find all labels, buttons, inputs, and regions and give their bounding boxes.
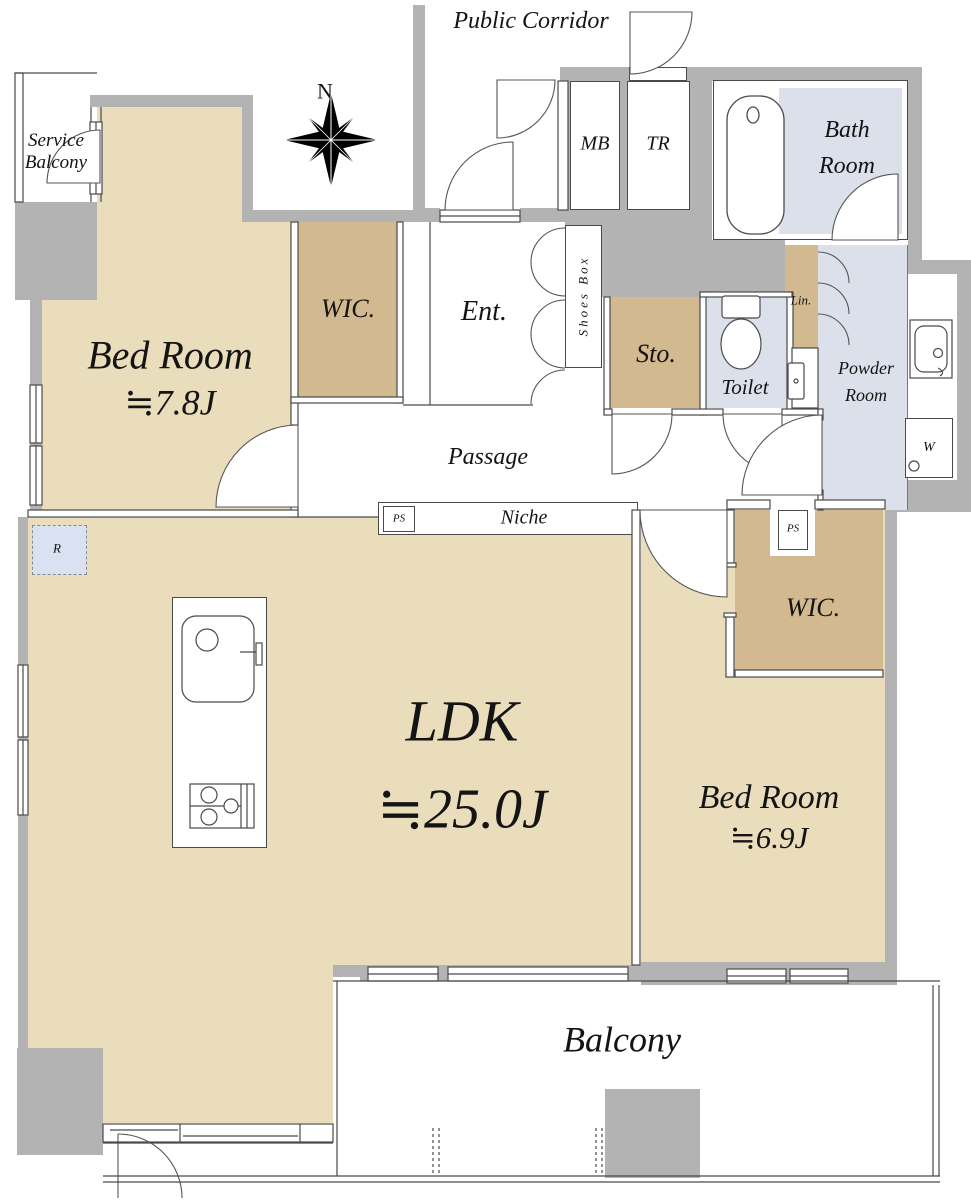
kitchen-faucet-base (256, 643, 262, 665)
corridor-door-arc (630, 12, 692, 74)
shoes-door-arc (531, 262, 565, 296)
ldk-size: ≒25.0J (377, 777, 547, 841)
floor-plan: Public Corridor N Service Balcony MB TR … (0, 0, 971, 1200)
washer-label: W (923, 440, 935, 456)
shoes-door-arc (531, 334, 565, 368)
ent-label: Ent. (461, 296, 507, 328)
passage-label: Passage (448, 444, 528, 472)
ps-left-label: PS (393, 513, 405, 526)
shoes-box-label: Shoes Box (577, 256, 592, 337)
bath-line2: Room (819, 148, 875, 184)
powder-line1: Powder (838, 355, 894, 382)
basin-drain (794, 379, 798, 383)
sto-door-arc (612, 414, 672, 474)
vanity-drain (934, 349, 943, 358)
service-balcony-label: Service Balcony (25, 130, 87, 174)
refrigerator-label: R (53, 542, 61, 557)
toilet-bowl (721, 319, 761, 369)
service-balcony-line2: Balcony (25, 152, 87, 174)
bed2-size: ≒6.9J (699, 820, 840, 856)
corridor-label: Public Corridor (453, 8, 608, 36)
kitchen-sink-drain (196, 629, 218, 651)
window-frames (18, 122, 848, 1142)
lin-label: Lin. (791, 294, 812, 309)
mb-label: MB (581, 133, 610, 156)
ps-right-label: PS (787, 523, 799, 536)
powder-line2: Room (838, 382, 894, 409)
wic-1-label: WIC. (321, 294, 375, 324)
vanity-sink (915, 326, 947, 372)
bed1-size: ≒7.8J (87, 382, 253, 423)
north-label: N (317, 78, 333, 103)
toilet-label: Toilet (721, 375, 768, 399)
compass-icon (284, 93, 378, 187)
porch-door-arc (497, 80, 555, 138)
niche-label: Niche (501, 507, 548, 530)
bed-room-1-label: Bed Room ≒7.8J (87, 332, 253, 423)
powder-room-label: Powder Room (838, 355, 894, 409)
stove-burner (201, 787, 217, 803)
bed1-name: Bed Room (87, 332, 253, 378)
service-balcony-line1: Service (25, 130, 87, 152)
bath-line1: Bath (819, 112, 875, 148)
balcony-lines (103, 981, 940, 1182)
stove-burner (224, 799, 238, 813)
bath-room-label: Bath Room (819, 112, 875, 184)
sto-label: Sto. (636, 339, 676, 369)
lin-fold-arc (818, 314, 849, 345)
shoes-door-arc (531, 300, 565, 334)
bath-fixtures (727, 96, 784, 234)
ldk-name: LDK (377, 688, 547, 755)
tr-label: TR (646, 133, 669, 156)
entry-door-arc (445, 142, 513, 210)
kitchen-fixtures (182, 616, 262, 828)
lin-fold-arc (818, 252, 849, 283)
bed-room-2-label: Bed Room ≒6.9J (699, 778, 840, 856)
balcony-label: Balcony (563, 1019, 681, 1060)
shoes-door-arc (531, 228, 565, 262)
toilet-tank (722, 296, 760, 318)
lin-fold-arc (818, 283, 849, 314)
ldk-label: LDK ≒25.0J (377, 688, 547, 841)
wic-2-label: WIC. (786, 593, 840, 623)
kitchen-sink (182, 616, 254, 702)
shoes-door-arc (531, 370, 565, 404)
stove-burner (201, 809, 217, 825)
washer-hookup (909, 461, 919, 471)
bed2-door-arc (640, 510, 727, 597)
bathtub-drain (747, 107, 759, 123)
bed1-door-arc (216, 425, 298, 507)
bed2-name: Bed Room (699, 778, 840, 817)
